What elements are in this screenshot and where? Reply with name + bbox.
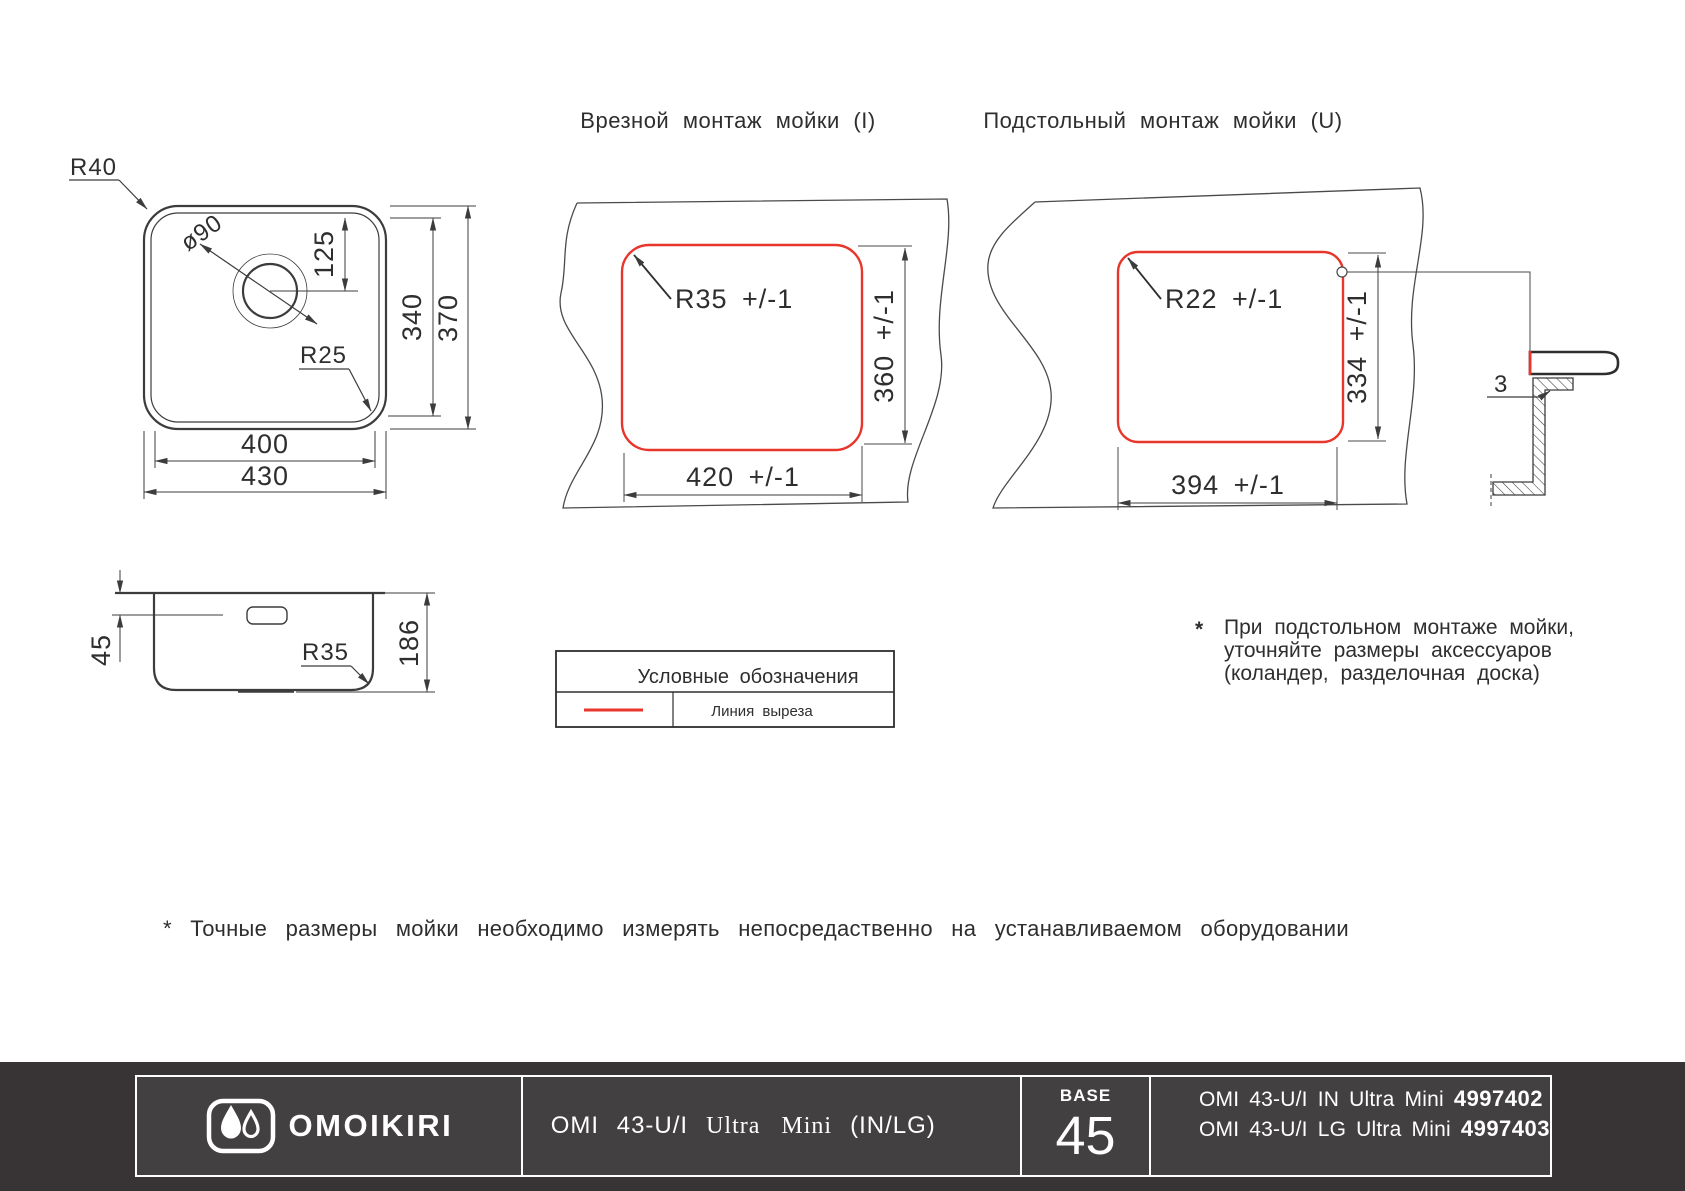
under-note-asterisk: *	[1195, 618, 1204, 641]
plan-d430: 430	[241, 461, 289, 491]
side-d186: 186	[394, 619, 424, 667]
product-model: OMI 43-U/I	[551, 1112, 688, 1140]
side-d45: 45	[86, 634, 116, 666]
under-width-dim: 394 +/-1	[1171, 470, 1285, 500]
under-height-dim: 334 +/-1	[1342, 290, 1372, 404]
under-mount-diagram	[988, 188, 1530, 510]
sku-line-description: OMI 43-U/I LG Ultra Mini	[1199, 1115, 1451, 1144]
sku-code: 4997402	[1454, 1084, 1543, 1113]
legend-title: Условные обозначения	[637, 666, 858, 688]
base-size-cell: BASE 45	[1022, 1077, 1151, 1175]
plan-r40-label: R40	[70, 154, 117, 181]
under-title: Подстольный монтаж мойки (U)	[983, 108, 1342, 133]
base-label: BASE	[1060, 1086, 1111, 1106]
plan-view-labels: R40 ø90 R25 125 340 370 400 430	[70, 154, 463, 491]
sku-row: OMI 43-U/I IN Ultra Mini 4997402	[1151, 1084, 1550, 1114]
product-name-cell: OMI 43-U/I Ultra Mini (IN/LG)	[523, 1077, 1022, 1175]
plan-d90-label: ø90	[176, 209, 228, 257]
plan-d125: 125	[309, 230, 339, 278]
inset-corner-label: R35 +/-1	[675, 284, 793, 314]
sku-row: OMI 43-U/I LG Ultra Mini 4997403	[1151, 1114, 1550, 1144]
inset-height-dim: 360 +/-1	[869, 289, 899, 403]
legend-cut-line-label: Линия выреза	[711, 703, 813, 720]
under-note-line-1: При подстольном монтаже мойки,	[1224, 616, 1574, 639]
sink-technical-drawing-page: R40 ø90 R25 125 340 370 400 430 45 R35 1…	[0, 0, 1685, 1191]
plan-r25-label: R25	[300, 342, 347, 369]
omoikiri-drops-icon	[205, 1097, 277, 1155]
product-series-name: Ultra Mini	[706, 1113, 832, 1140]
sku-code: 4997403	[1461, 1114, 1550, 1143]
bottom-note: * Точные размеры мойки необходимо измеря…	[163, 916, 1349, 941]
drawing-canvas: R40 ø90 R25 125 340 370 400 430 45 R35 1…	[0, 0, 1685, 1191]
inset-width-dim: 420 +/-1	[686, 462, 800, 492]
brand-cell: OMOIKIRI	[137, 1077, 523, 1175]
side-view	[112, 570, 435, 692]
plan-d340: 340	[397, 293, 427, 341]
side-r35-label: R35	[302, 639, 349, 666]
under-note-line-2: уточняйте размеры аксессуаров	[1224, 639, 1552, 662]
sku-cell: OMI 43-U/I IN Ultra Mini 4997402 OMI 43-…	[1151, 1077, 1550, 1175]
rim-thickness-dim: 3	[1494, 371, 1508, 398]
sku-line-description: OMI 43-U/I IN Ultra Mini	[1199, 1085, 1444, 1114]
inset-mount-labels: Врезной монтаж мойки (I) R35 +/-1 360 +/…	[580, 108, 899, 492]
legend-box: Условные обозначения Линия выреза	[556, 651, 894, 727]
base-value: 45	[1056, 1108, 1116, 1165]
under-note-line-3: (коландер, разделочная доска)	[1224, 662, 1540, 685]
title-block-table: OMOIKIRI OMI 43-U/I Ultra Mini (IN/LG) B…	[135, 1075, 1552, 1177]
inset-title: Врезной монтаж мойки (I)	[580, 108, 875, 133]
title-block-footer: OMOIKIRI OMI 43-U/I Ultra Mini (IN/LG) B…	[0, 1062, 1685, 1191]
brand-wordmark: OMOIKIRI	[289, 1108, 454, 1144]
under-mount-note: * При подстольном монтаже мойки, уточняй…	[1195, 616, 1574, 685]
plan-d400: 400	[241, 429, 289, 459]
product-finishes: (IN/LG)	[850, 1112, 936, 1140]
under-corner-label: R22 +/-1	[1165, 284, 1283, 314]
rim-section-detail: 3	[1487, 351, 1618, 509]
plan-d370: 370	[433, 294, 463, 342]
